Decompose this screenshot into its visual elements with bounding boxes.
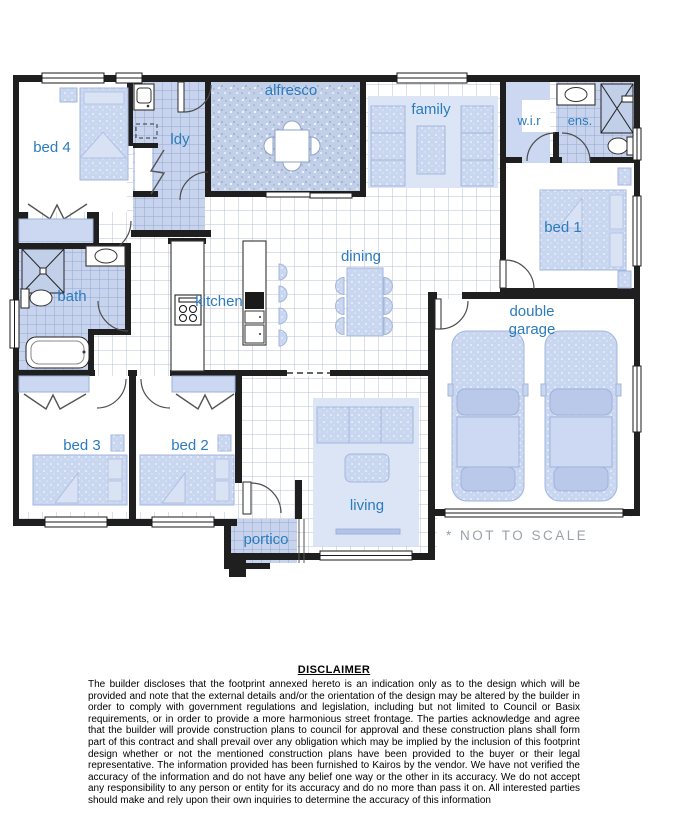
living-label: living bbox=[350, 497, 384, 514]
rear-window bbox=[461, 467, 515, 491]
alfresco-label: alfresco bbox=[265, 82, 318, 99]
window bbox=[633, 128, 641, 160]
window bbox=[10, 300, 19, 348]
kitchen-label: kitchen bbox=[195, 293, 243, 310]
bedside-table bbox=[111, 435, 124, 451]
toilet-tank bbox=[21, 289, 29, 308]
basin bbox=[95, 249, 117, 263]
tap bbox=[83, 351, 86, 354]
bath-label: bath bbox=[57, 288, 86, 305]
laundry-closet bbox=[135, 148, 152, 193]
mirror bbox=[541, 384, 546, 396]
oven bbox=[245, 292, 264, 309]
bed1-door-leaf bbox=[500, 260, 506, 288]
windshield bbox=[550, 389, 612, 415]
mirror bbox=[448, 384, 453, 396]
bed3-label: bed 3 bbox=[63, 437, 101, 454]
disclaimer-section: DISCLAIMER The builder discloses that th… bbox=[88, 664, 580, 807]
sliding-door bbox=[266, 192, 352, 198]
window bbox=[152, 517, 214, 527]
pillow bbox=[84, 92, 124, 104]
cased-opening bbox=[287, 370, 330, 376]
disclaimer-title: DISCLAIMER bbox=[88, 664, 580, 676]
mirror bbox=[523, 384, 528, 396]
toilet-tank bbox=[627, 137, 633, 155]
pillow bbox=[610, 233, 623, 267]
garage-door bbox=[445, 509, 623, 517]
bed3-robe bbox=[19, 376, 89, 392]
bed2-label: bed 2 bbox=[171, 437, 209, 454]
garage-label-line2: garage bbox=[509, 321, 556, 338]
bedside-table bbox=[618, 271, 631, 288]
window bbox=[397, 73, 467, 83]
pillow bbox=[215, 459, 229, 479]
toilet-bowl bbox=[30, 290, 52, 306]
window bbox=[320, 551, 412, 560]
ensuite-label: ens. bbox=[568, 113, 593, 128]
roof bbox=[550, 417, 612, 467]
bedside-table bbox=[218, 435, 231, 451]
bed4-label: bed 4 bbox=[33, 139, 71, 156]
family-label: family bbox=[411, 101, 451, 118]
pillow bbox=[610, 195, 623, 229]
dining-table bbox=[347, 268, 383, 336]
wir-label: w.i.r bbox=[516, 113, 541, 128]
tv-unit bbox=[336, 529, 400, 534]
shower-shelf bbox=[622, 96, 633, 102]
mirror bbox=[616, 384, 621, 396]
car bbox=[541, 331, 621, 501]
basin bbox=[565, 88, 587, 102]
floor-plan: bed 4 ldy alfresco family w.i.r ens. bed… bbox=[0, 0, 677, 620]
windshield bbox=[457, 389, 519, 415]
tap bbox=[147, 105, 150, 108]
window bbox=[633, 196, 641, 266]
laundry-ext-door-leaf bbox=[178, 82, 184, 112]
dining-furniture bbox=[336, 268, 393, 336]
sofa bbox=[317, 407, 413, 443]
window bbox=[45, 517, 107, 527]
window bbox=[116, 73, 142, 83]
dining-label: dining bbox=[341, 248, 381, 265]
exterior-mask bbox=[13, 526, 231, 571]
laundry-label: ldy bbox=[170, 131, 190, 148]
window bbox=[633, 366, 641, 432]
bed4-robe bbox=[19, 219, 93, 242]
car bbox=[448, 331, 528, 501]
floor-plan-svg: bed 4 ldy alfresco family w.i.r ens. bed… bbox=[0, 0, 677, 620]
rear-window bbox=[554, 467, 608, 491]
disclaimer-body: The builder discloses that the footprint… bbox=[88, 679, 580, 807]
not-to-scale-note: * NOT TO SCALE bbox=[446, 528, 588, 543]
roof bbox=[457, 417, 519, 467]
outdoor-table bbox=[275, 130, 309, 162]
garage-label-line1: double bbox=[509, 303, 554, 320]
pillow bbox=[215, 481, 229, 501]
bedside-table bbox=[618, 168, 631, 185]
pillow bbox=[108, 459, 122, 479]
pillow bbox=[108, 481, 122, 501]
bed2-robe bbox=[172, 376, 235, 392]
bedside-table bbox=[60, 88, 77, 102]
sofa bbox=[461, 106, 493, 186]
bed1-label: bed 1 bbox=[544, 219, 582, 236]
coffee-table bbox=[417, 126, 445, 174]
coffee-table bbox=[345, 454, 389, 482]
shower-drain bbox=[40, 268, 46, 274]
window bbox=[42, 73, 104, 83]
sofa bbox=[371, 106, 405, 186]
garage-door-leaf bbox=[435, 299, 441, 329]
front-door-leaf bbox=[243, 482, 251, 514]
toilet-bowl bbox=[608, 138, 628, 154]
portico-label: portico bbox=[243, 531, 288, 548]
